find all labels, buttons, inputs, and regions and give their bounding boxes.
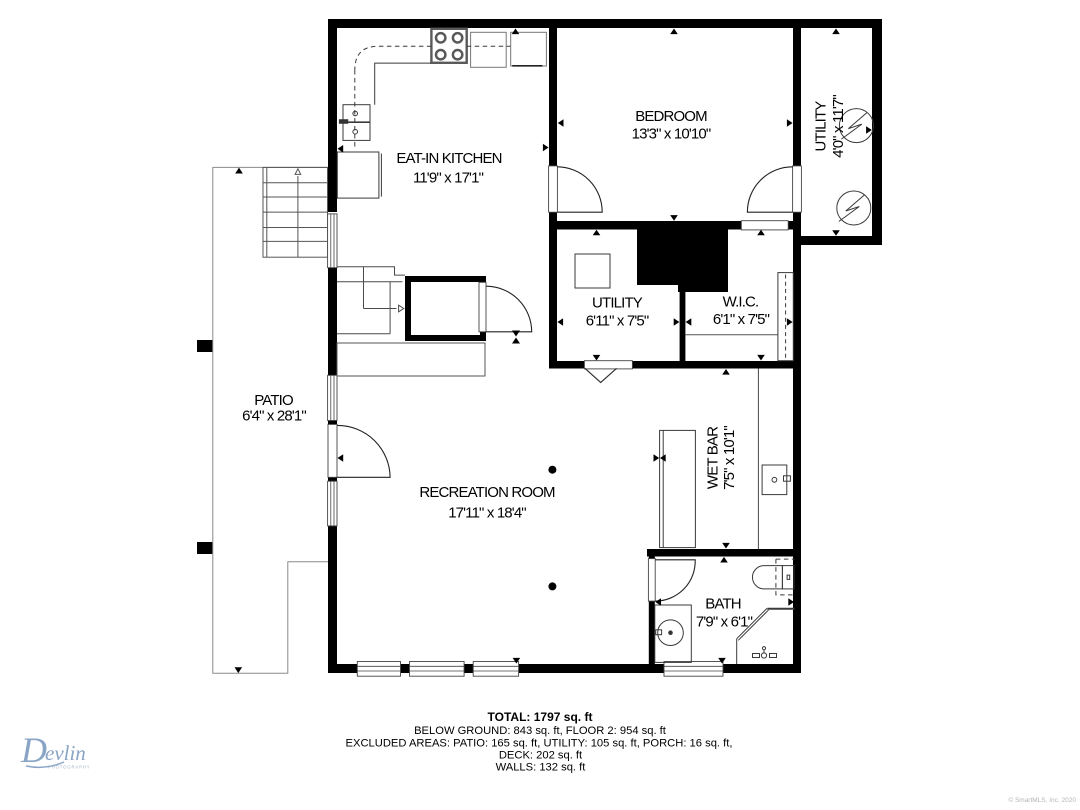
svg-text:6'4" x 28'1": 6'4" x 28'1"	[242, 407, 306, 424]
svg-text:TOTAL: 1797 sq. ft: TOTAL: 1797 sq. ft	[488, 710, 593, 724]
svg-text:11'9" x 17'1": 11'9" x 17'1"	[413, 170, 484, 187]
svg-text:6'11" x 7'5": 6'11" x 7'5"	[586, 313, 649, 330]
svg-text:BELOW GROUND: 843 sq. ft, FLOO: BELOW GROUND: 843 sq. ft, FLOOR 2: 954 s…	[414, 725, 667, 737]
svg-text:UTILITY: UTILITY	[592, 295, 643, 312]
svg-text:13'3" x 10'10": 13'3" x 10'10"	[632, 126, 711, 143]
svg-text:WET BAR: WET BAR	[705, 426, 722, 489]
svg-text:6'1" x 7'5": 6'1" x 7'5"	[713, 311, 770, 328]
svg-text:EAT-IN KITCHEN: EAT-IN KITCHEN	[396, 150, 501, 167]
svg-text:W.I.C.: W.I.C.	[723, 294, 759, 311]
svg-text:7'5" x 10'1": 7'5" x 10'1"	[721, 426, 738, 490]
svg-text:4'0" x 11'7": 4'0" x 11'7"	[830, 95, 847, 158]
svg-text:PHOTOGRAPHY: PHOTOGRAPHY	[48, 765, 90, 770]
svg-text:DECK: 202 sq. ft: DECK: 202 sq. ft	[499, 750, 583, 762]
svg-text:BEDROOM: BEDROOM	[635, 108, 707, 125]
svg-text:EXCLUDED AREAS: PATIO: 165 sq.: EXCLUDED AREAS: PATIO: 165 sq. ft, UTILI…	[346, 738, 733, 750]
svg-text:D: D	[20, 730, 47, 770]
svg-text:7'9" x 6'1": 7'9" x 6'1"	[696, 614, 753, 631]
svg-text:WALLS: 132 sq. ft: WALLS: 132 sq. ft	[496, 761, 587, 773]
svg-text:RECREATION ROOM: RECREATION ROOM	[419, 484, 555, 501]
svg-text:17'11" x 18'4": 17'11" x 18'4"	[448, 505, 526, 522]
svg-text:BATH: BATH	[705, 596, 741, 613]
svg-text:UTILITY: UTILITY	[813, 101, 830, 152]
svg-text:© SmartMLS, Inc. 2020: © SmartMLS, Inc. 2020	[1008, 796, 1076, 804]
svg-text:evlin: evlin	[45, 741, 86, 765]
